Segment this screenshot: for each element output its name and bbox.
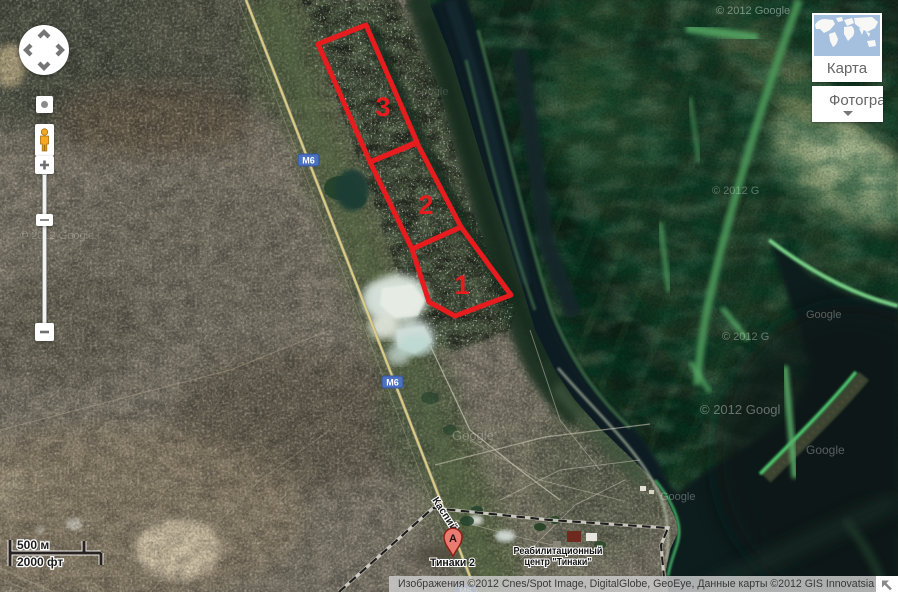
svg-text:Google: Google (806, 443, 845, 457)
svg-text:A: A (449, 533, 457, 545)
svg-text:© 2012 G: © 2012 G (722, 331, 769, 343)
svg-text:центр "Тинаки": центр "Тинаки" (525, 557, 592, 568)
svg-text:© 2012 G: © 2012 G (712, 185, 759, 197)
svg-text:Реабилитационный: Реабилитационный (514, 545, 603, 557)
svg-text:© 2012 Google: © 2012 Google (20, 230, 94, 242)
svg-text:Google: Google (660, 491, 695, 503)
svg-text:2000 фт: 2000 фт (17, 555, 63, 569)
svg-text:500 м: 500 м (17, 538, 49, 552)
svg-text:3: 3 (375, 92, 390, 122)
svg-text:1: 1 (454, 270, 469, 300)
svg-text:© 2012 Google: © 2012 Google (716, 5, 790, 17)
svg-text:М6: М6 (302, 156, 315, 166)
svg-text:Google: Google (413, 86, 448, 98)
svg-text:© 2012 Googl: © 2012 Googl (700, 402, 781, 417)
svg-text:М6: М6 (386, 378, 399, 388)
svg-text:Google: Google (452, 428, 494, 443)
svg-text:Тинаки 2: Тинаки 2 (430, 557, 475, 569)
svg-text:2: 2 (418, 190, 433, 220)
svg-text:Google: Google (806, 309, 841, 321)
